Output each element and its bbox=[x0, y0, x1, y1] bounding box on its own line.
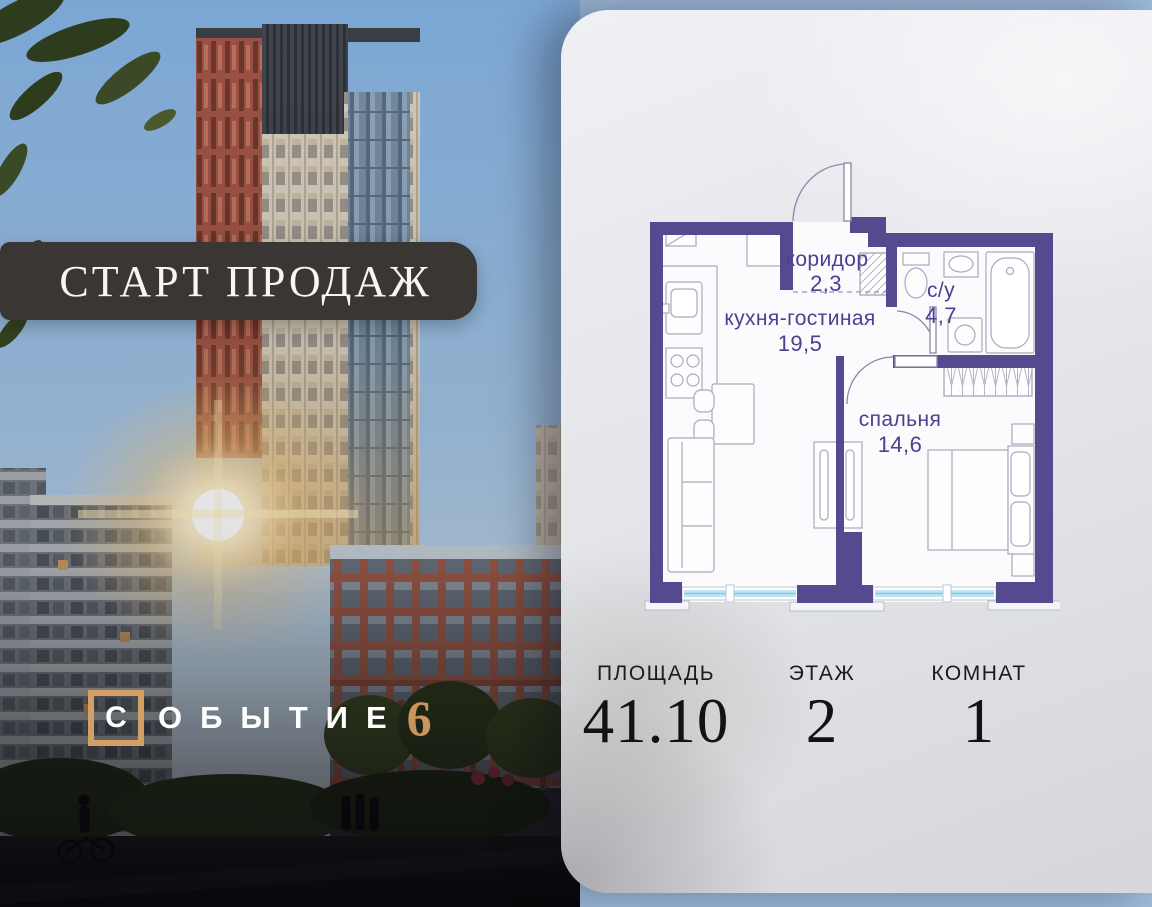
kitchen-sink bbox=[662, 282, 702, 334]
toilet bbox=[903, 253, 929, 298]
room-area-bathroom: 4,7 bbox=[925, 303, 957, 328]
logo-number: 6 bbox=[407, 693, 432, 743]
stat-floor-label: ЭТАЖ bbox=[789, 662, 856, 686]
floor-plan: коридор 2,3 кухня-гостиная 19,5 с/у 4,7 … bbox=[640, 150, 1060, 620]
entry-door bbox=[793, 163, 851, 221]
bed bbox=[928, 446, 1034, 554]
sales-start-badge: СТАРТ ПРОДАЖ bbox=[0, 242, 477, 320]
bath-sink bbox=[944, 252, 978, 277]
room-area-corridor: 2,3 bbox=[810, 271, 842, 296]
sofa bbox=[668, 438, 714, 572]
room-name-corridor: коридор bbox=[786, 248, 869, 271]
room-name-bathroom: с/у bbox=[927, 279, 955, 302]
sales-start-label: СТАРТ ПРОДАЖ bbox=[45, 256, 431, 307]
logo-letters: ОБЫТИЕ bbox=[158, 700, 405, 736]
dusk-overlay bbox=[0, 0, 580, 907]
room-name-kitchen: кухня-гостиная bbox=[724, 307, 875, 330]
stat-rooms: КОМНАТ 1 bbox=[931, 662, 1026, 757]
stat-rooms-label: КОМНАТ bbox=[931, 662, 1026, 686]
stat-floor-value: 2 bbox=[789, 686, 856, 757]
room-name-bedroom: спальня bbox=[859, 408, 942, 431]
building-photo bbox=[0, 0, 580, 907]
logo-boxed-letter: С bbox=[105, 703, 127, 733]
stat-area-label: ПЛОЩАДЬ bbox=[583, 662, 730, 686]
room-area-kitchen: 19,5 bbox=[778, 331, 822, 356]
stat-rooms-value: 1 bbox=[931, 686, 1026, 757]
logo-frame-icon: С bbox=[88, 690, 144, 746]
stat-area-value: 41.10 bbox=[583, 686, 730, 757]
brand-logo: С ОБЫТИЕ 6 bbox=[88, 688, 432, 748]
stove bbox=[666, 348, 702, 398]
bedroom-wardrobe bbox=[944, 366, 1032, 396]
apartment-card: коридор 2,3 кухня-гостиная 19,5 с/у 4,7 … bbox=[561, 10, 1152, 893]
bathtub bbox=[986, 252, 1034, 353]
room-area-bedroom: 14,6 bbox=[878, 432, 922, 457]
ad-creative: СТАРТ ПРОДАЖ С ОБЫТИЕ 6 bbox=[0, 0, 1152, 907]
stat-area: ПЛОЩАДЬ 41.10 bbox=[583, 662, 730, 757]
nightstand-bottom bbox=[1012, 554, 1034, 576]
nightstand-top bbox=[1012, 424, 1034, 444]
stat-floor: ЭТАЖ 2 bbox=[789, 662, 856, 757]
